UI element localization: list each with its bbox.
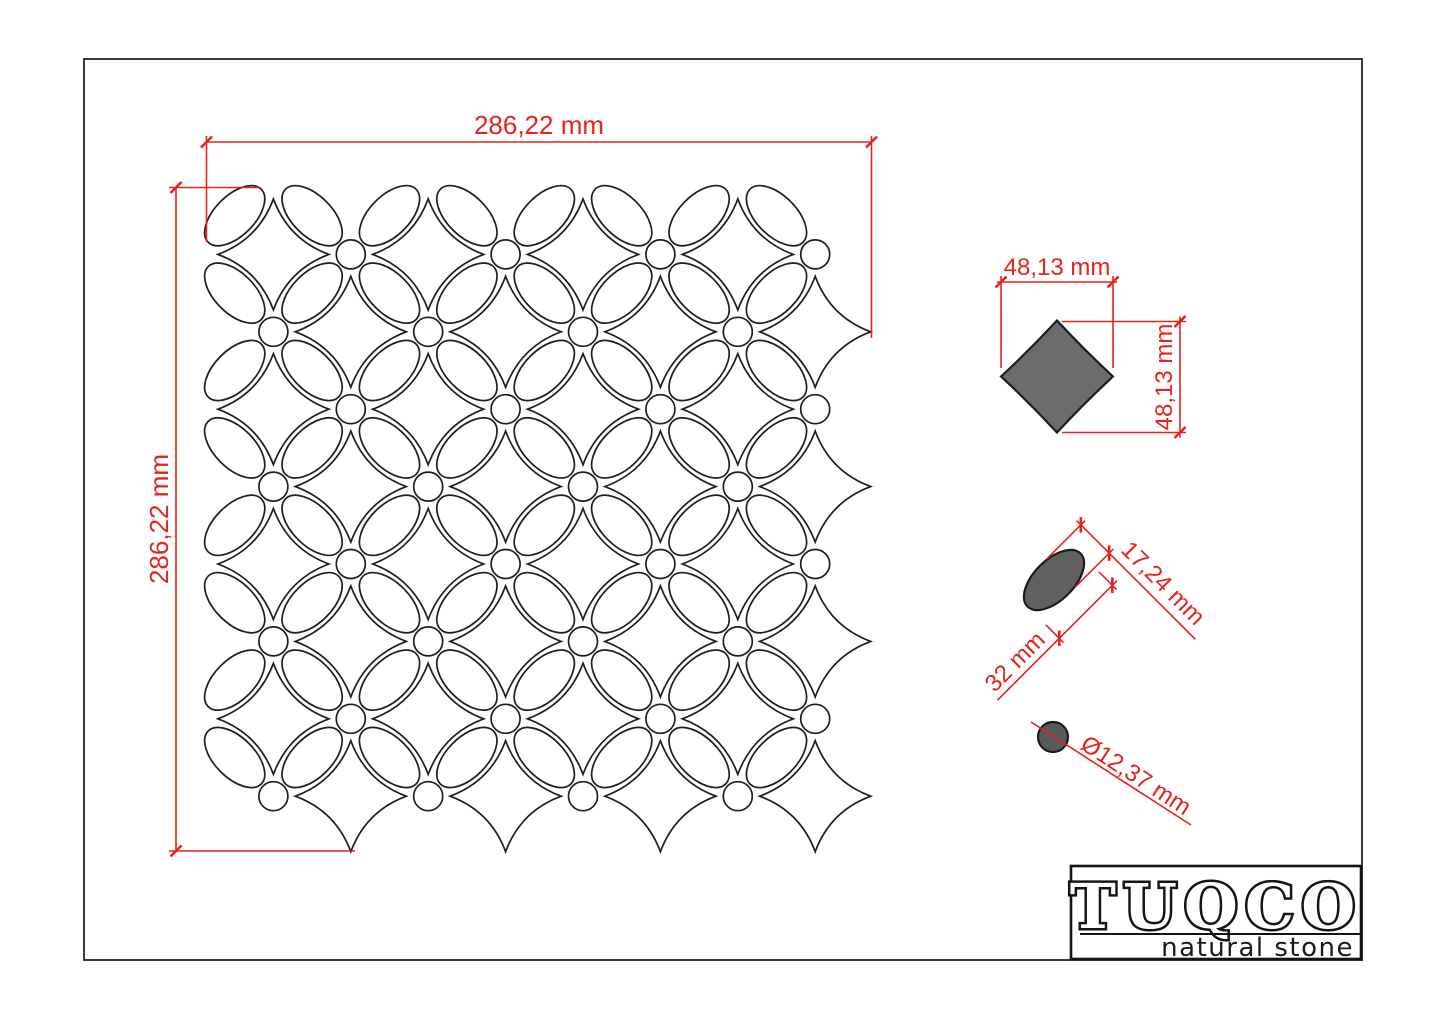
star-tile-shape [1001,321,1113,433]
mosaic-dot-tile [646,550,675,579]
mosaic-dot-tile [414,317,443,346]
witness-line [1099,572,1117,590]
mosaic-dot-tile [414,472,443,501]
star-width-label: 48,13 mm [1004,254,1111,281]
mosaic-dot-tile [259,627,288,656]
mosaic-dot-tile [723,317,752,346]
mosaic-dot-tile [569,472,598,501]
brand-tagline: natural stone [1161,933,1354,963]
mosaic-dot-tile [414,782,443,811]
sheet-height-label: 286,22 mm [144,454,174,584]
star-height-label: 48,13 mm [1151,324,1178,431]
ellipse-width-label: 17,24 mm [1116,536,1211,631]
mosaic-pattern [194,175,871,852]
mosaic-dot-tile [336,240,365,269]
mosaic-dot-tile [259,317,288,346]
ellipse-length-label: 32 mm [980,626,1051,697]
mosaic-dot-tile [723,472,752,501]
mosaic-dot-tile [801,550,830,579]
sheet-width-label: 286,22 mm [474,110,604,140]
mosaic-dot-tile [336,704,365,733]
mosaic-dot-tile [723,782,752,811]
mosaic-dot-tile [491,704,520,733]
ellipse-detail-group: 32 mm 17,24 mm [947,499,1216,768]
mosaic-dot-tile [336,395,365,424]
mosaic-dot-tile [569,317,598,346]
brand-logo: TUQCO natural stone [1070,866,1363,963]
mosaic-dot-tile [801,704,830,733]
mosaic-dot-tile [646,240,675,269]
mosaic-dot-tile [723,627,752,656]
mosaic-dot-tile [491,395,520,424]
dot-diameter-label: Ø12,37 mm [1076,730,1196,821]
mosaic-dot-tile [801,240,830,269]
mosaic-dot-tile [646,395,675,424]
mosaic-dot-tile [414,627,443,656]
witness-line [1046,625,1064,643]
mosaic-dot-tile [491,240,520,269]
mosaic-dot-tile [569,782,598,811]
mosaic-dot-tile [259,472,288,501]
technical-drawing-canvas: 286,22 mm 286,22 mm 48,13 mm 48,13 mm [0,0,1445,1021]
mosaic-dot-tile [491,550,520,579]
mosaic-dot-tile [569,627,598,656]
drawing-page: 286,22 mm 286,22 mm 48,13 mm 48,13 mm [0,0,1445,1021]
mosaic-dot-tile [646,704,675,733]
mosaic-dot-tile [801,395,830,424]
mosaic-dot-tile [336,550,365,579]
mosaic-dot-tile [259,782,288,811]
